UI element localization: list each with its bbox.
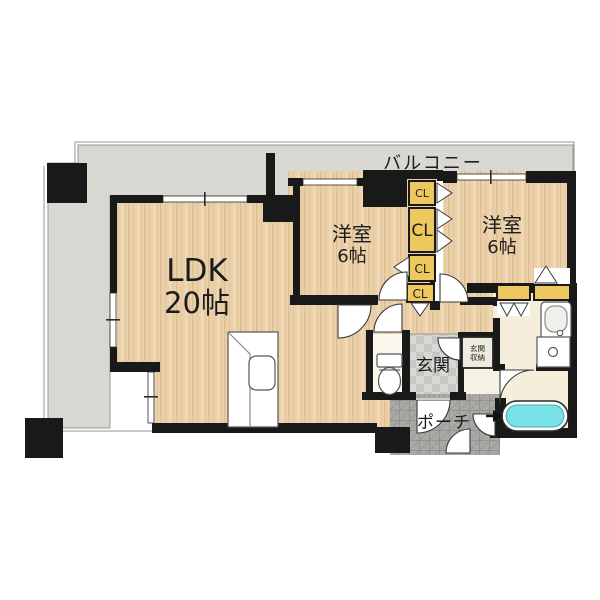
bathtub-water <box>506 405 564 427</box>
bedroom-right-size-label: 6帖 <box>487 237 516 258</box>
toilet <box>377 354 402 395</box>
window-ldk-step-tick <box>144 396 158 398</box>
window-bedroom-right-tick <box>490 170 492 184</box>
closet-bedroom-right <box>534 285 570 300</box>
wall-center-mass <box>363 170 407 207</box>
kitchen-sink <box>249 356 275 390</box>
wall-ldk-top-left <box>110 195 163 203</box>
window-ldk-top-tick <box>204 192 206 206</box>
porch-label: ポーチ <box>417 413 471 433</box>
closet-2-label: CL <box>411 221 433 241</box>
wall-bedroom-left-bottom <box>290 295 378 305</box>
ldk-label: LDK <box>166 253 228 289</box>
kitchen-counter <box>228 332 278 427</box>
closet-washroom <box>497 285 530 300</box>
bedroom-left-label: 洋室 <box>332 222 372 246</box>
balcony-label: バルコニー <box>383 153 483 174</box>
wall-ldk-bedroom-divider <box>293 178 300 305</box>
washbasin-bowl <box>545 306 567 332</box>
wall-ldk-step <box>110 362 160 372</box>
wall-entrance-bottom-b <box>450 392 466 400</box>
column-bottom-left <box>25 418 63 458</box>
wall-toilet-left <box>366 330 373 400</box>
window-bedroom-left <box>303 179 357 185</box>
toilet-bowl <box>379 368 401 395</box>
balcony-divider-wall <box>266 153 275 197</box>
wall-toilet-right <box>402 330 410 400</box>
wall-ldk-top-block <box>263 195 293 222</box>
window-ldk-left-tick <box>106 319 120 321</box>
column-top-left <box>47 163 87 203</box>
closet-1-label: CL <box>415 187 430 200</box>
washing-machine <box>537 337 570 367</box>
washbasin <box>541 302 571 339</box>
floor-plan: 玄関 収納 バルコニー LDK 20帖 洋室 6帖 洋室 6帖 CL CL CL… <box>0 0 600 600</box>
entrance-storage-label-line2: 収納 <box>470 352 485 362</box>
wall-porch-corner-block <box>375 427 410 453</box>
wall-washroom-left-b <box>493 318 500 368</box>
washing-machine-pan <box>537 337 570 367</box>
entrance-storage-cabinet: 玄関 収納 <box>462 337 493 368</box>
toilet-tank <box>377 354 402 367</box>
washbasin-drain <box>557 330 563 336</box>
closet-4-label: CL <box>412 287 427 301</box>
closet-3-label: CL <box>414 262 429 276</box>
entrance-storage-label-line1: 玄関 <box>470 343 485 353</box>
bedroom-right-label: 洋室 <box>482 213 522 237</box>
entrance-label: 玄関 <box>416 356 450 376</box>
wall-ldk-left-upper <box>110 195 117 293</box>
ldk-size-label: 20帖 <box>164 286 230 320</box>
bedroom-left-size-label: 6帖 <box>337 246 366 267</box>
